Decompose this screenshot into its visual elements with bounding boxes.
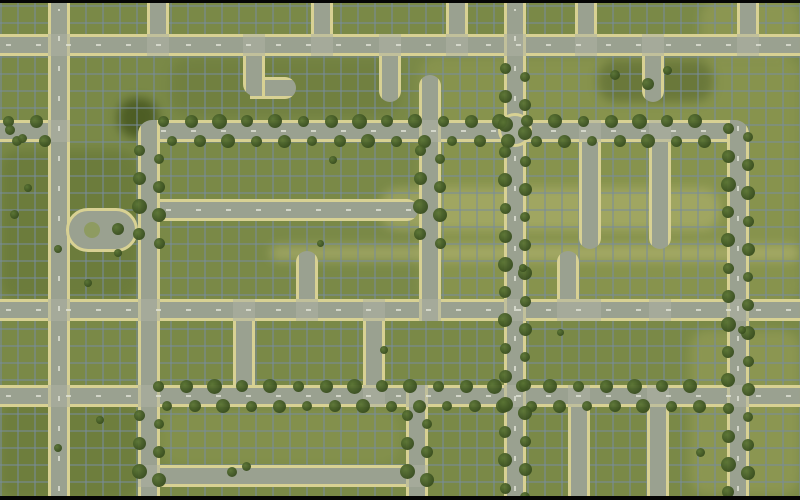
tree [519,463,532,476]
lane-markings-central-avenue [6,309,794,311]
tree [520,72,530,82]
cul-de-sac-island [84,222,100,238]
tree [499,146,511,158]
tree [520,352,530,362]
road-v-top-b [311,3,333,34]
tree [498,397,513,412]
tree [743,412,753,422]
tree [519,183,532,196]
tree [641,134,655,148]
tree [741,466,755,480]
tree [531,136,542,147]
tree [498,453,512,467]
road-connector-a [233,321,255,385]
tree [656,380,668,392]
tree [376,380,388,392]
tree [433,381,444,392]
tree [722,150,735,163]
tree [167,136,177,146]
tree [693,400,706,413]
tree [154,419,164,429]
tree [519,323,532,336]
tree [298,116,309,127]
tree [738,326,746,334]
tree [498,117,513,132]
tree [403,379,417,393]
tree [24,184,32,192]
tree [251,136,262,147]
tree [742,243,755,256]
tree [133,172,146,185]
road-v-top-e [737,3,759,34]
tree [499,230,512,243]
tree [352,114,367,129]
road-stub-up-central-b [557,251,579,299]
tree [114,249,122,257]
city-aerial-viewport[interactable] [0,0,800,500]
tree [421,446,433,458]
tree [442,401,452,411]
tree [548,114,562,128]
tree [553,400,566,413]
tree [742,383,755,396]
tree [520,212,530,222]
tree [663,66,672,75]
tree [153,446,165,458]
tree [154,238,165,249]
tree [520,296,531,307]
road-stub-up-center [419,75,441,120]
tree [573,381,584,392]
tree [742,159,754,171]
tree [413,199,428,214]
tree [381,115,393,127]
tree [498,173,512,187]
tree [30,115,43,128]
tree [212,114,227,129]
tree [518,126,532,140]
tree [587,136,597,146]
tree [307,136,317,146]
road-hook-vertical [243,56,265,96]
tree [152,473,166,487]
road-stub-up-central-a [296,251,318,299]
tree [54,444,62,452]
tree [543,379,557,393]
tree [500,483,511,494]
tree [474,135,486,147]
tree [10,210,19,219]
tree [194,135,206,147]
tree [499,90,512,103]
tree [293,381,304,392]
tree [420,473,434,487]
tree [268,114,282,128]
road-south-street-a [568,407,590,497]
tree [207,379,222,394]
letterbox-top [0,0,800,3]
tree [519,379,531,391]
tree [499,286,511,298]
tree [414,172,427,185]
tree [661,115,673,127]
tree [401,437,414,450]
tree [5,125,15,135]
tree [422,419,432,429]
tree [742,439,754,451]
tree [133,437,146,450]
tree [134,145,145,156]
tree [721,317,736,332]
lane-markings-mid-deadend-road [166,209,412,211]
tree [721,457,736,472]
tree [632,114,647,129]
lane-markings-tree-avenue [161,130,721,132]
tree [447,136,457,146]
tree [498,257,513,272]
tree [600,380,613,393]
tree [465,115,478,128]
tree [609,400,621,412]
tree [487,379,502,394]
tree [380,346,388,354]
tree [698,135,711,148]
tree [582,401,592,411]
tree [520,436,531,447]
tree [469,400,481,412]
tree [636,399,650,413]
tree [642,78,654,90]
tree [273,400,286,413]
tree [460,380,473,393]
tree [610,70,620,80]
tree [84,279,92,287]
tree [221,134,235,148]
tree [391,136,402,147]
road-v-top-d [575,3,597,34]
road-v-top-a [147,3,169,34]
tree [153,181,165,193]
tree [627,379,642,394]
tree [721,233,735,247]
tree [518,406,532,420]
tree [132,199,147,214]
tree [415,145,426,156]
tree [558,135,571,148]
tree [242,462,251,471]
tree [162,401,172,411]
tree [152,208,166,222]
tree [742,299,754,311]
tree [500,203,511,214]
tree [413,400,426,413]
tree [743,216,754,227]
lane-markings-east-tree-vertical [737,126,739,491]
tree [500,343,511,354]
tree [325,115,338,128]
tree [671,136,682,147]
tree [347,379,362,394]
road-stub-down-mid-a [579,142,601,249]
road-v-top-c [446,3,468,34]
tree [743,356,754,367]
tree [743,132,753,142]
tree [435,154,445,164]
tree [433,208,447,222]
tree [132,464,147,479]
tree [520,156,531,167]
tree [246,401,257,412]
tree [236,380,248,392]
road-stub-from-top-a [379,56,401,102]
tree [741,186,755,200]
tree [361,134,375,148]
tree [721,373,735,387]
tree [134,410,145,421]
tree [414,228,426,240]
lane-markings-lower-tree-avenue [6,395,794,397]
tree [400,464,415,479]
road-stub-down-mid-b [649,142,671,249]
tree [112,223,124,235]
tree [614,135,626,147]
tree [54,245,62,253]
tree [216,399,230,413]
tree [500,63,511,74]
tree [688,114,702,128]
tree [302,401,312,411]
tree [241,115,253,127]
tree [180,380,193,393]
tree [96,416,104,424]
tree [133,228,145,240]
tree [329,400,341,412]
lane-markings-main-tree-vertical [514,9,516,491]
tree [356,399,370,413]
cul-de-sac-bulb [66,208,138,252]
tree [158,116,169,127]
tree [402,410,413,421]
tree [722,206,734,218]
tree [499,370,512,383]
tree [408,114,422,128]
tree [723,123,734,134]
tree [498,313,512,327]
tree [329,156,337,164]
tree [519,99,531,111]
tree [278,135,291,148]
tree [227,467,237,477]
tree [434,181,446,193]
tree [722,290,735,303]
tree [723,403,734,414]
tree [386,401,397,412]
tree [721,177,736,192]
tree [519,239,531,251]
tree [153,381,164,392]
tree [263,379,277,393]
tree [578,116,589,127]
tree [317,240,324,247]
tree [666,401,677,412]
tree [722,346,734,358]
tree [722,430,735,443]
tree [185,115,198,128]
letterbox-bottom [0,496,800,500]
tree [320,380,333,393]
tree [18,134,27,143]
tree [435,238,446,249]
tree [499,426,511,438]
tree [189,400,201,412]
tree [39,135,51,147]
tree [696,448,705,457]
lane-markings-top-avenue [6,44,794,46]
tree [154,154,164,164]
tree [605,115,618,128]
tree [438,116,449,127]
tree [683,379,697,393]
tree [743,272,753,282]
tree [519,264,527,272]
tree [723,263,734,274]
road-bottom-street [155,465,428,487]
road-south-street-b [647,407,669,497]
tree [557,329,564,336]
tree [334,135,346,147]
